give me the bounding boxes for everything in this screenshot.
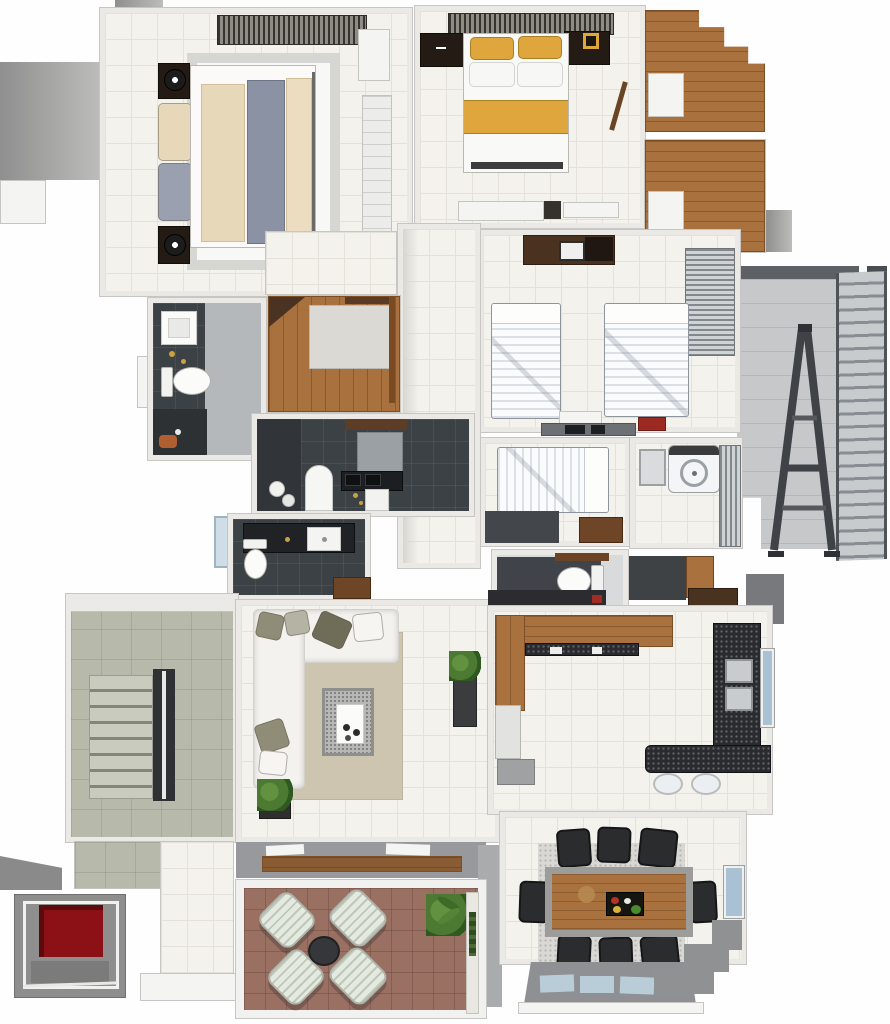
stair-railing — [153, 669, 175, 801]
vanity-sink-cut — [345, 474, 361, 486]
room-bedroom-yellow — [415, 6, 645, 228]
counter-right — [713, 623, 761, 747]
desk-items — [565, 425, 585, 434]
headboard-pillow — [158, 103, 192, 161]
sofa-pillow — [283, 609, 311, 637]
bed-pillow-zone — [584, 448, 608, 512]
stool — [691, 773, 721, 795]
shower-pan — [153, 409, 207, 455]
room-kitchen — [488, 606, 772, 814]
wood-shelf — [555, 553, 609, 561]
vanity-sink-cut — [365, 474, 381, 486]
fridge — [495, 705, 521, 759]
gold-faucet — [181, 359, 186, 364]
floor-plan-canvas — [0, 0, 890, 1024]
washer-panel — [669, 446, 719, 455]
toilet-tank — [243, 539, 267, 549]
room-closet-upper — [645, 10, 765, 132]
ledge-band — [236, 842, 486, 878]
basin — [365, 489, 389, 511]
room-living — [236, 600, 500, 842]
stair-steps — [89, 675, 153, 799]
paper-sheet — [386, 843, 430, 856]
sill-pane — [620, 976, 655, 994]
wood-trim — [345, 419, 407, 430]
gold-faucet — [359, 501, 363, 505]
louver-screen — [719, 445, 741, 547]
dining-chair — [596, 826, 631, 863]
dresser-2 — [563, 202, 619, 218]
wood-plate — [578, 886, 595, 903]
room-laundry — [630, 438, 742, 548]
white-pillow — [517, 62, 563, 87]
exterior-right-slab — [766, 210, 792, 252]
yellow-pillow — [470, 37, 514, 60]
shadow-step — [654, 968, 714, 994]
dining-table — [545, 867, 693, 937]
shower-stool — [159, 435, 177, 448]
gold-faucet — [169, 351, 175, 357]
washer-dot — [692, 471, 697, 476]
room-dining — [500, 812, 746, 964]
toilet-tank — [161, 367, 173, 397]
room-bedroom-single — [480, 438, 630, 546]
railing-gap — [162, 671, 166, 799]
dining-chair — [556, 828, 593, 868]
door — [648, 191, 684, 235]
stove — [497, 759, 535, 785]
bed-pillow-zone — [605, 304, 688, 324]
gold-faucet — [353, 493, 358, 498]
faucet-dot — [322, 537, 327, 542]
dining-window-right — [724, 866, 744, 918]
shower-pan — [357, 432, 403, 472]
food-red — [611, 897, 619, 904]
wood-door — [579, 517, 623, 543]
double-bed-yellow — [463, 33, 569, 173]
yellow-band — [464, 100, 568, 134]
elevator-corridor — [161, 842, 233, 974]
shower-drain — [175, 429, 181, 435]
wood-bench — [262, 856, 462, 872]
room-bedroom-twin — [478, 230, 740, 432]
paper-sheet — [266, 844, 304, 856]
red-box — [638, 417, 666, 431]
sofa-pillow — [352, 612, 385, 643]
basin-inner — [168, 318, 190, 338]
landing-band — [71, 599, 233, 612]
food-yellow — [613, 906, 621, 913]
room-bathroom-1 — [148, 298, 266, 460]
tray-cup — [345, 735, 351, 741]
room-elevator — [14, 894, 126, 998]
plant — [257, 779, 293, 811]
bed-blanket-cream-2 — [286, 78, 312, 244]
patio-armchair — [255, 888, 319, 952]
patio-sprig — [469, 912, 476, 956]
bed-edge — [312, 72, 315, 242]
kitchen-hood-counter — [488, 590, 606, 606]
utility-tub — [639, 449, 666, 486]
wardrobe — [217, 15, 367, 45]
upper-cabinet — [688, 588, 738, 608]
double-sink — [725, 687, 753, 711]
patio-round-table — [308, 936, 340, 966]
tray-cup — [343, 724, 350, 731]
sill-pane — [540, 974, 575, 992]
bed-foot-trim — [471, 162, 563, 169]
a-frame-ladder-icon — [762, 318, 842, 558]
single-bed — [604, 303, 689, 417]
room-bathroom-3 — [228, 514, 370, 600]
corridor-upper — [266, 232, 396, 294]
service-hall-dark — [628, 556, 686, 600]
room-hallway — [398, 224, 480, 568]
desk — [541, 423, 636, 436]
closet-blinds — [685, 248, 735, 356]
plant — [449, 651, 481, 681]
outer-sill-band — [518, 1002, 704, 1014]
room-closet-l — [268, 296, 400, 412]
cabinet-dark-block — [585, 237, 613, 261]
basin — [307, 527, 341, 551]
door-leaf — [609, 81, 628, 130]
bed-pillow-zone — [492, 304, 560, 324]
toilet-bowl — [173, 367, 211, 395]
nightstand-cross — [436, 47, 446, 49]
door-wedge — [269, 297, 305, 327]
counter-strip — [525, 643, 639, 656]
exterior-stair — [836, 271, 887, 561]
single-bed — [497, 447, 609, 513]
room-bathroom-2 — [252, 414, 474, 516]
serving-tray — [606, 892, 644, 916]
gold-faucet — [285, 537, 290, 542]
wood-edge — [389, 297, 395, 403]
bed-blanket-cream — [201, 84, 245, 242]
closet-inset-floor — [309, 305, 391, 369]
table-lamp — [164, 234, 186, 256]
faucet-block — [592, 647, 602, 654]
breakfast-bar — [645, 745, 771, 773]
closet-panel — [362, 95, 392, 236]
room-stairwell — [66, 594, 238, 842]
table-lamp — [164, 69, 186, 91]
red-item — [592, 595, 602, 603]
double-bed — [190, 65, 316, 248]
bed-runner — [247, 80, 285, 244]
tub — [305, 465, 333, 511]
headboard-pillow-gray — [158, 163, 192, 221]
faucet-block — [550, 647, 562, 654]
tray-cup — [353, 729, 360, 736]
wood-trim — [345, 297, 391, 304]
desk-items — [591, 425, 605, 434]
coffee-table — [322, 688, 374, 756]
room-patio — [236, 880, 486, 1018]
elevator-cab-floor — [39, 905, 103, 957]
yellow-pillow — [518, 36, 562, 59]
pedestal-lamp — [282, 494, 295, 507]
dresser — [458, 201, 544, 221]
kitchen-window — [761, 649, 774, 727]
picture-frame-yellow — [583, 33, 599, 49]
cabinet-inset — [559, 241, 585, 261]
exterior-left-slab — [0, 62, 100, 180]
door — [648, 73, 684, 117]
toilet-bowl — [244, 549, 267, 579]
double-sink — [725, 659, 753, 683]
basin — [161, 311, 197, 345]
kitchen-wood-counter-left — [495, 615, 525, 711]
sofa-pillow — [255, 611, 286, 642]
exterior-left-ledge — [0, 180, 46, 224]
wood-door — [333, 577, 371, 599]
stool — [653, 773, 683, 795]
nightstand — [420, 33, 464, 67]
cabinet — [358, 29, 390, 81]
sofa-pillow — [258, 750, 288, 777]
stairwell-extension — [75, 842, 161, 888]
food-white — [624, 898, 631, 904]
sill-pane — [580, 976, 614, 993]
elevator-sill — [31, 961, 109, 983]
food-green — [631, 905, 641, 914]
single-bed — [491, 303, 561, 419]
pedestal-lamp — [269, 481, 285, 497]
white-pillow — [469, 62, 515, 87]
room-service-balcony — [737, 266, 887, 564]
gray-wedge — [0, 856, 62, 890]
washer — [668, 445, 720, 493]
floor-shadow — [485, 511, 559, 543]
dining-chair — [637, 827, 679, 869]
dresser-dark-item — [544, 201, 561, 219]
